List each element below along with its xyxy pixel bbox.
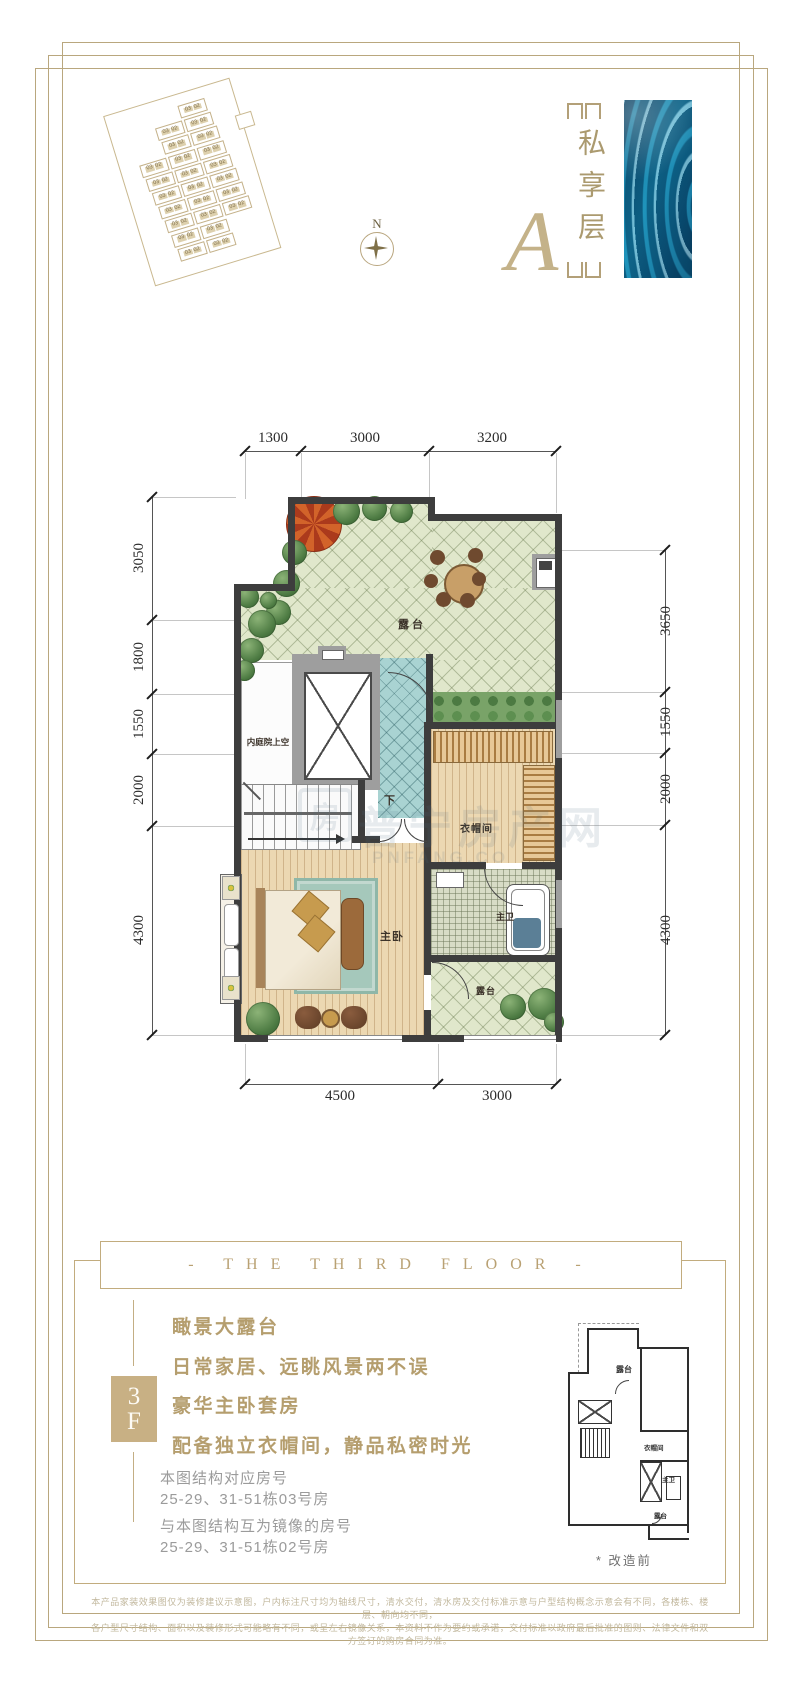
- bed-bench: [341, 898, 364, 970]
- site-plan: 0302030203020302030203020302030203020302…: [103, 82, 313, 300]
- label-master-bath: 主卫: [496, 910, 514, 923]
- plant: [246, 1002, 280, 1036]
- compass-north-label: N: [365, 216, 389, 232]
- feature-bullets: 瞰景大露台日常家居、远眺风景两不误豪华主卧套房配备独立衣帽间，静品私密时光: [172, 1306, 572, 1464]
- thumb-label-cloak: 衣帽间: [644, 1442, 664, 1452]
- hedge: [430, 692, 555, 724]
- label-courtyard-void: 内庭院上空: [244, 736, 292, 748]
- dimension-left: 30501800155020004300: [128, 470, 168, 1045]
- disclaimer-line-1: 本产品家装效果图仅为装修建议示意图，户内标注尺寸均为轴线尺寸，清水交付，清水房及…: [90, 1596, 710, 1622]
- series-letter: A: [492, 198, 572, 284]
- floor-badge: 3 F: [111, 1376, 157, 1442]
- label-master-bedroom: 主卧: [380, 928, 404, 944]
- section-banner: - THE THIRD FLOOR -: [100, 1241, 682, 1289]
- blue-art-panel: [624, 100, 692, 278]
- thumbnail-plan: 露台 衣帽间 主卫 露台: [558, 1318, 698, 1546]
- headboard: [256, 888, 265, 988]
- label-terrace-small: 露台: [476, 984, 496, 997]
- dimension-right: 3650155020004300: [650, 540, 690, 1045]
- disclaimer-line-2: 各户型尺寸结构、面积以及装修形式可能略有不同，或呈左右镜像关系，本资料不作为要约…: [90, 1622, 710, 1648]
- window: [464, 1035, 556, 1043]
- floor-tag-vertical: 私享层: [569, 128, 609, 262]
- thumb-caption: * 改造前: [596, 1550, 652, 1569]
- thumb-label-bath: 主卫: [662, 1474, 675, 1484]
- bracket-ornament-top: [566, 103, 606, 121]
- disclaimer: 本产品家装效果图仅为装修建议示意图，户内标注尺寸均为轴线尺寸，清水交付，清水房及…: [90, 1596, 710, 1648]
- window: [268, 1035, 402, 1043]
- watermark-logo: 房: [298, 788, 352, 842]
- dimension-top: 130030003200: [245, 430, 556, 482]
- wardrobe: [433, 731, 553, 763]
- floorplan-poster: 0302030203020302030203020302030203020302…: [0, 0, 800, 1684]
- unit-info: 本图结构对应房号25-29、31-51栋03号房与本图结构互为镜像的房号25-2…: [160, 1468, 540, 1558]
- elevator: [304, 672, 372, 780]
- thumb-elevator: [578, 1400, 612, 1424]
- compass-icon: [360, 232, 394, 266]
- thumb-label-terrace: 露台: [616, 1364, 632, 1375]
- watermark-text-en: PNFANG.CO: [372, 848, 509, 868]
- thumb-stairs: [580, 1428, 610, 1458]
- courtyard-void: [241, 662, 294, 786]
- planter: [222, 976, 240, 1000]
- bracket-ornament-bottom: [566, 262, 606, 280]
- side-table: [321, 1009, 340, 1028]
- planter: [222, 876, 240, 900]
- watermark-text-cn: 普宁房产网: [358, 792, 608, 856]
- label-terrace-main: 露台: [398, 616, 426, 632]
- washbasin: [436, 872, 464, 888]
- armchair: [295, 1006, 321, 1029]
- dimension-bottom: 45003000: [245, 1070, 556, 1112]
- site-empty-lot: [235, 111, 256, 130]
- armchair: [341, 1006, 367, 1029]
